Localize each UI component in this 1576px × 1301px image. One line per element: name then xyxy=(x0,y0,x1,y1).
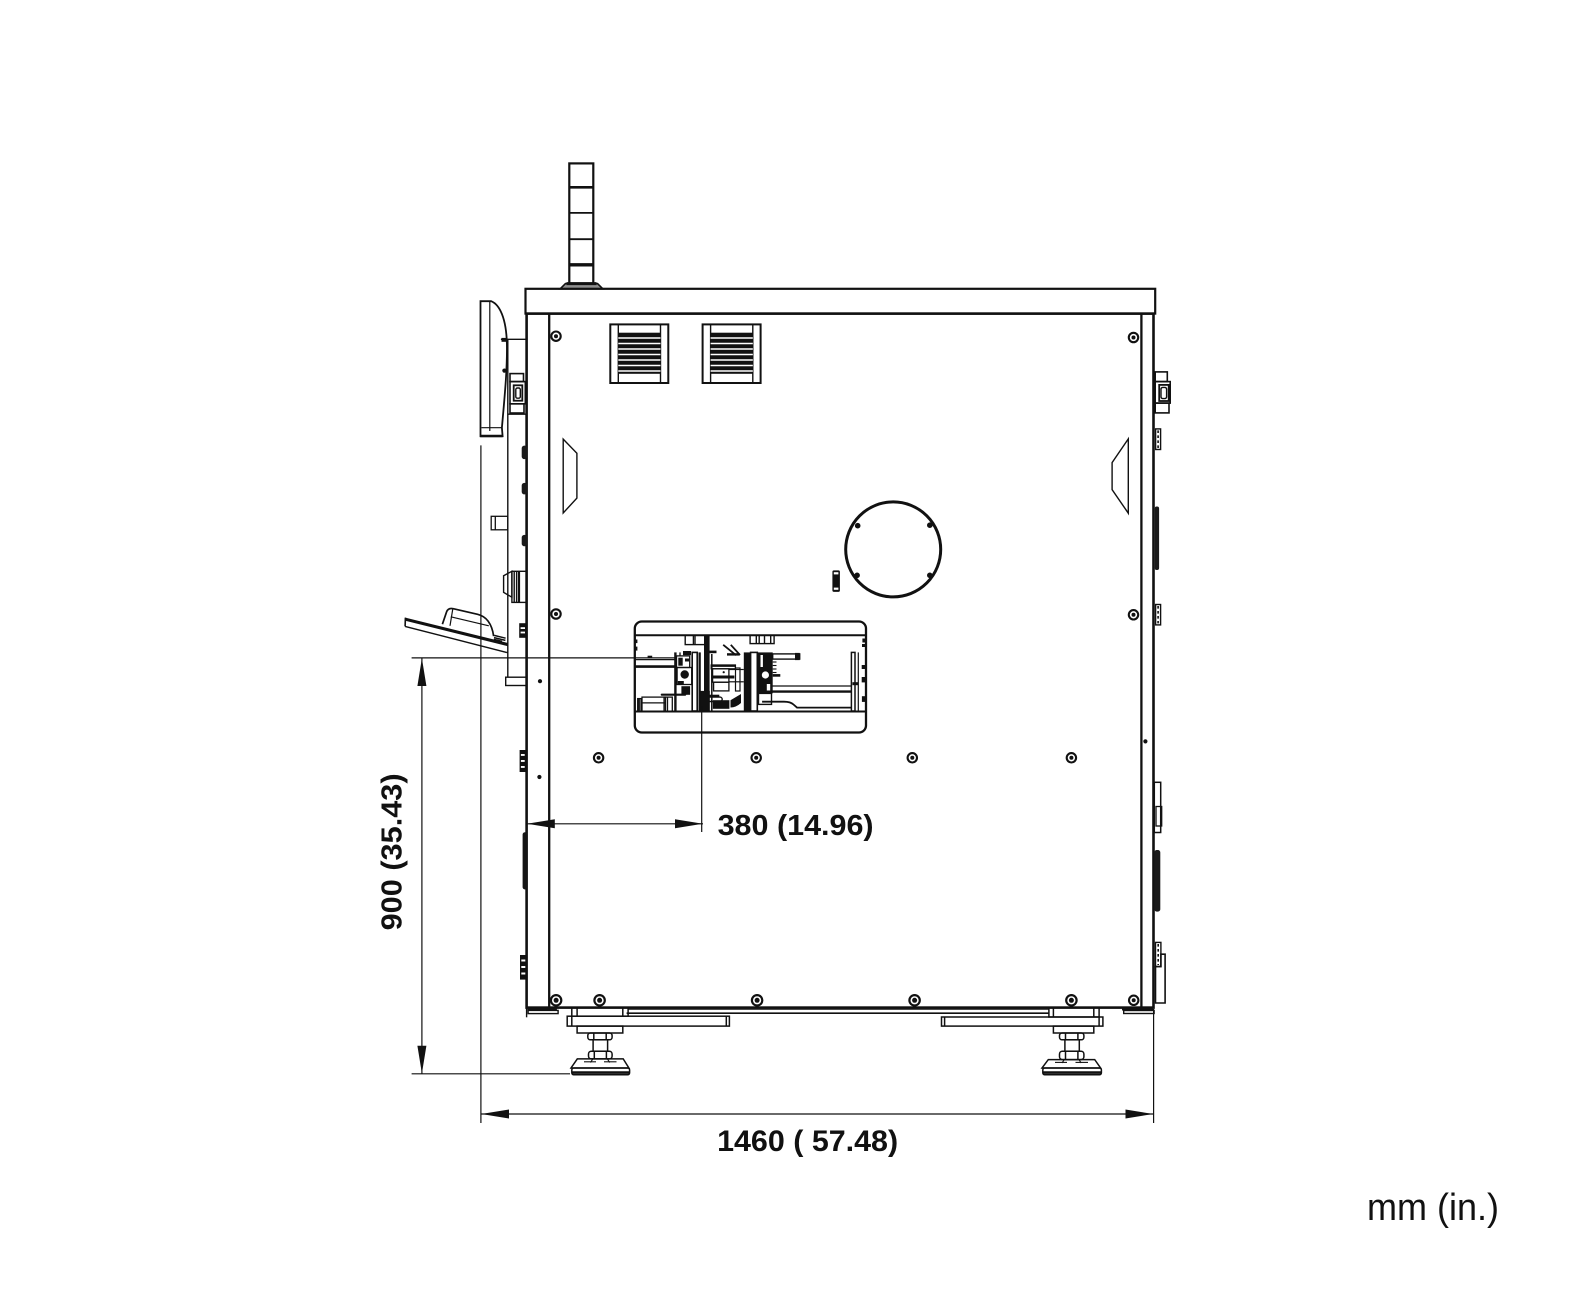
svg-text:1460 ( 57.48): 1460 ( 57.48) xyxy=(717,1125,898,1158)
svg-text:900 (35.43): 900 (35.43) xyxy=(376,773,408,930)
svg-text:380 (14.96): 380 (14.96) xyxy=(718,810,874,842)
svg-text:mm (in.): mm (in.) xyxy=(1367,1187,1499,1229)
